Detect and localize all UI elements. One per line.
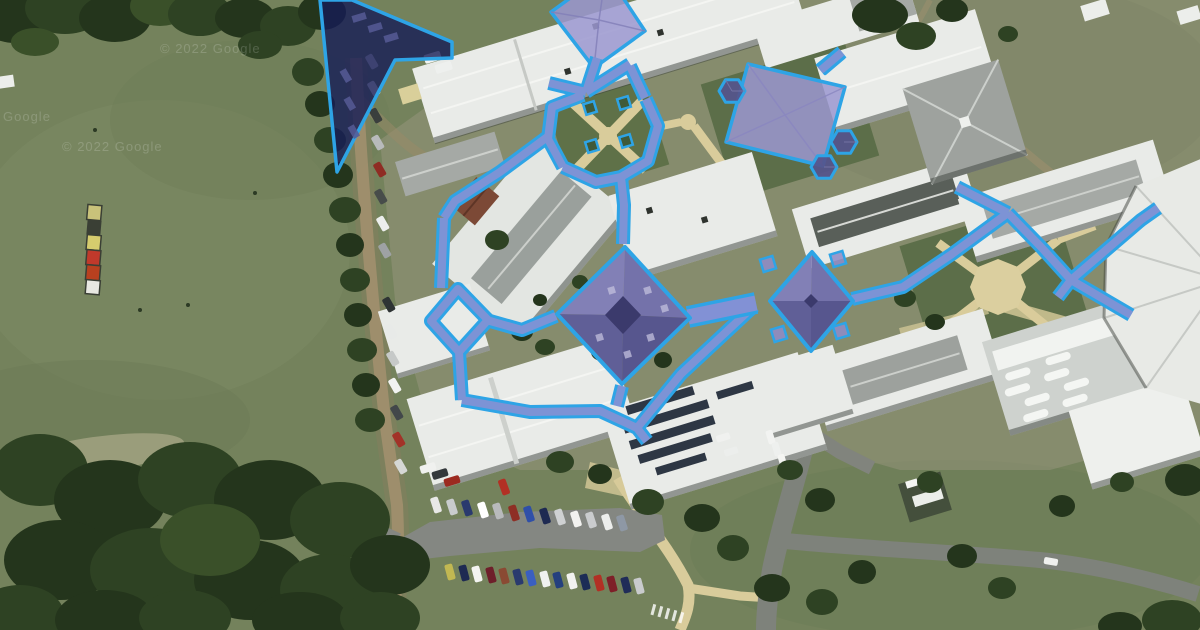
overlay-pyramid-roof-east[interactable]	[760, 251, 853, 351]
watermark-google-left: Google	[3, 109, 51, 124]
watermark-google-top: © 2022 Google	[160, 41, 261, 56]
satellite-map-view[interactable]: Google © 2022 Google © 2022 Google	[0, 0, 1200, 630]
watermark-google-mid: © 2022 Google	[62, 139, 163, 154]
